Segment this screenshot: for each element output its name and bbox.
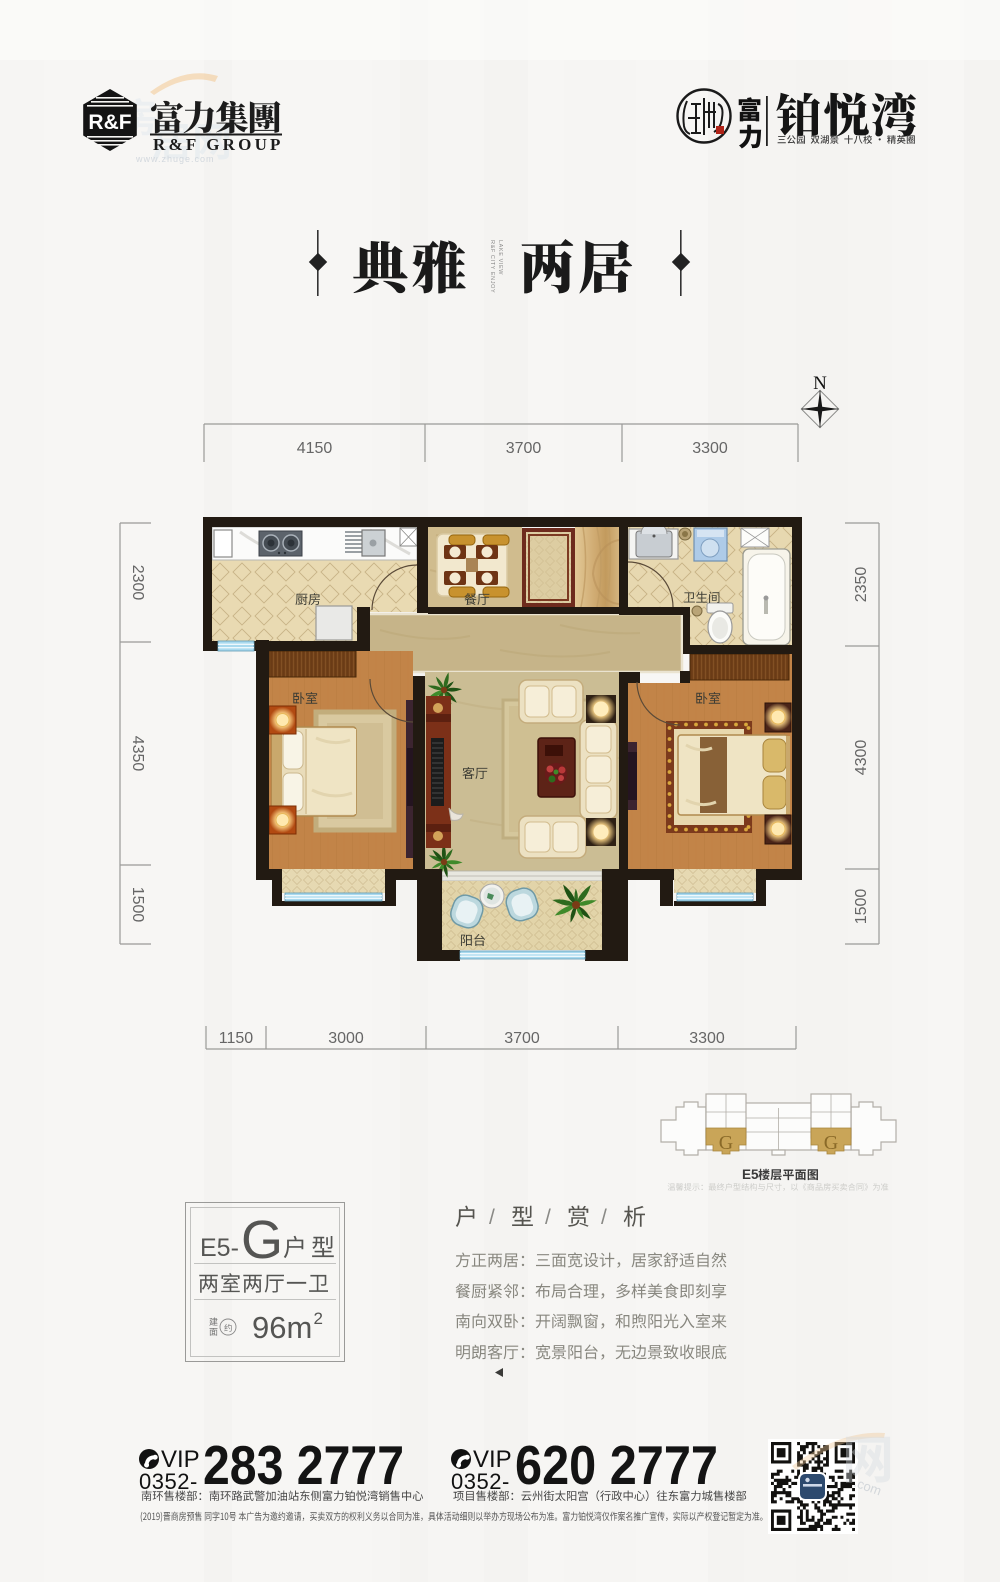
svg-text:0352-: 0352- [139,1469,198,1494]
svg-text:1500: 1500 [129,887,146,923]
svg-text:R&F GROUP: R&F GROUP [153,135,284,154]
svg-text:www.zhuge.com: www.zhuge.com [135,154,215,164]
svg-text:2300: 2300 [129,565,146,601]
svg-text:3300: 3300 [692,440,728,457]
svg-text:96m: 96m [252,1310,312,1345]
svg-text:3700: 3700 [506,440,542,457]
svg-text:4150: 4150 [297,440,333,457]
svg-text:3000: 3000 [328,1030,364,1047]
svg-text:LAKE VIEW: LAKE VIEW [497,240,503,275]
svg-text:R&F CITY ENJOY: R&F CITY ENJOY [489,240,495,293]
svg-text:E5-: E5- [200,1234,239,1262]
svg-text:1500: 1500 [853,889,870,925]
svg-text:4300: 4300 [853,740,870,776]
svg-text:3700: 3700 [504,1030,540,1047]
svg-text:G: G [241,1210,283,1270]
svg-text:/: / [545,1206,551,1229]
svg-text:0352-: 0352- [451,1469,510,1494]
svg-text:/: / [489,1206,495,1229]
svg-text:3300: 3300 [689,1030,725,1047]
svg-text:283 2777: 283 2777 [203,1434,404,1496]
svg-text:1150: 1150 [219,1030,254,1047]
svg-text:2350: 2350 [853,567,870,603]
svg-text:R&F: R&F [88,111,131,134]
svg-text:620 2777: 620 2777 [515,1434,718,1496]
svg-text:E5: E5 [742,1167,759,1182]
svg-text:4350: 4350 [129,736,146,772]
svg-text:/: / [601,1206,607,1229]
svg-text:2: 2 [314,1309,323,1328]
svg-text:G: G [719,1132,733,1154]
svg-text:G: G [824,1132,838,1154]
